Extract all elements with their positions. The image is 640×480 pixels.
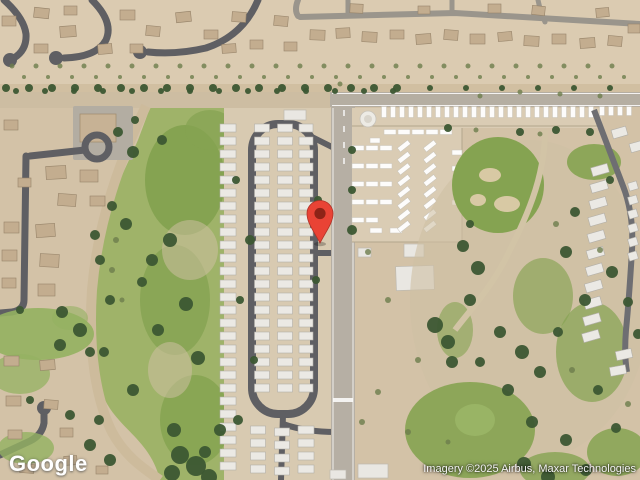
gravel-road-west xyxy=(0,92,330,108)
marker-hole xyxy=(314,208,325,219)
water-tank-dome xyxy=(360,111,376,127)
satellite-map[interactable] xyxy=(0,0,640,480)
paved-road-east xyxy=(330,92,640,107)
imagery-attribution: Imagery ©2025 Airbus, Maxar Technologies xyxy=(423,463,636,475)
main-road xyxy=(331,106,355,480)
google-logo[interactable]: Google xyxy=(9,451,88,477)
map-viewport[interactable]: Google Imagery ©2025 Airbus, Maxar Techn… xyxy=(0,0,640,480)
